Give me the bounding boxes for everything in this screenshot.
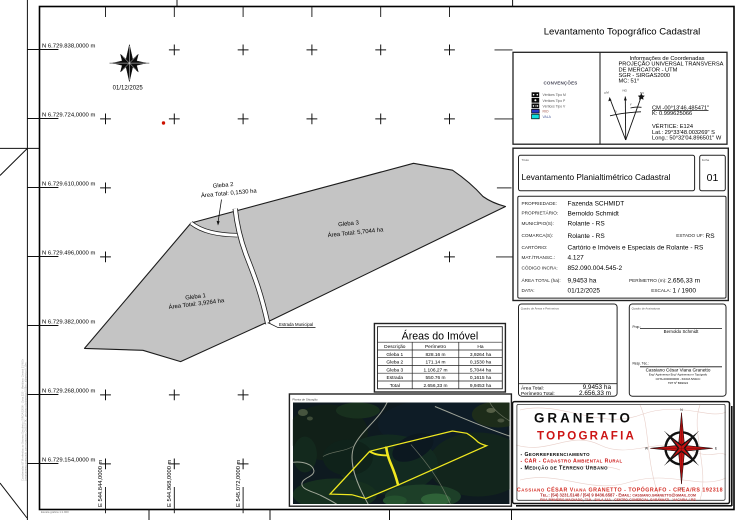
svg-text:Gleba 1: Gleba 1: [386, 352, 403, 358]
svg-text:Gleba 2: Gleba 2: [213, 182, 234, 190]
svg-text:Folha: Folha: [702, 158, 710, 162]
svg-text:Long.: 50°32'04.896501" W: Long.: 50°32'04.896501" W: [652, 136, 722, 142]
svg-text:0,1615 ha: 0,1615 ha: [470, 375, 492, 381]
svg-text:Bernoldo Schmidt: Bernoldo Schmidt: [568, 210, 619, 217]
svg-text:MUNICÍPIO(S):: MUNICÍPIO(S):: [522, 220, 554, 226]
svg-text:RIO: RIO: [543, 110, 549, 114]
svg-text:N 6.729.724,0000 m: N 6.729.724,0000 m: [42, 112, 95, 118]
svg-text:2.656,33 m: 2.656,33 m: [579, 390, 611, 397]
svg-text:MAT./TRANSC.:: MAT./TRANSC.:: [522, 255, 556, 260]
svg-text:Quadro de Áreas e Perímetros: Quadro de Áreas e Perímetros: [521, 306, 560, 310]
svg-text:CARTÓRIO:: CARTÓRIO:: [522, 244, 548, 250]
svg-text:Áreas do Imóvel: Áreas do Imóvel: [402, 330, 479, 343]
svg-text:COMARCA(S):: COMARCA(S):: [522, 233, 554, 238]
svg-text:Levantamento Topográfico Cadas: Levantamento Topográfico Cadastral: [544, 27, 701, 38]
svg-text:2.656,33 m: 2.656,33 m: [423, 383, 447, 389]
svg-text:CÓDIGO INCRA:: CÓDIGO INCRA:: [522, 265, 558, 271]
svg-text:N 6.729.610,0000 m: N 6.729.610,0000 m: [42, 181, 95, 187]
svg-text:Planta de Situação: Planta de Situação: [292, 397, 318, 401]
svg-text:Rolante - RS: Rolante - RS: [568, 221, 606, 228]
svg-text:Eng° Agrimensor Eng° Agrimenso: Eng° Agrimensor Eng° Agrimensor e Topógr…: [649, 373, 708, 377]
svg-text:Perímetro Total:: Perímetro Total:: [521, 391, 555, 397]
svg-text:Área Total:: Área Total:: [521, 384, 544, 391]
svg-text:171.14 m: 171.14 m: [425, 360, 445, 366]
svg-text:ÁREA TOTAL (ha):: ÁREA TOTAL (ha):: [522, 277, 561, 283]
svg-text:Vértices Tipo P: Vértices Tipo P: [543, 99, 567, 103]
svg-text:ESTADO UF:: ESTADO UF:: [676, 233, 704, 238]
svg-text:PROPRIETÁRIO:: PROPRIETÁRIO:: [522, 210, 559, 216]
svg-text:Levantamento Planialtimétrico: Levantamento Planialtimétrico Cadastral: [522, 172, 671, 182]
svg-text:μM: μM: [605, 91, 610, 95]
svg-text:Estrada Municipal: Estrada Municipal: [279, 322, 313, 327]
svg-text:Ha: Ha: [477, 344, 483, 350]
svg-text:Vértices Tipo V: Vértices Tipo V: [543, 104, 567, 108]
svg-text:1 / 1900: 1 / 1900: [673, 288, 697, 295]
svg-text:852.090.004.545-2: 852.090.004.545-2: [568, 265, 623, 272]
svg-text:01/12/2025: 01/12/2025: [113, 86, 144, 92]
svg-text:Levantamento executado com rec: Levantamento executado com receptores GN…: [24, 363, 28, 481]
svg-text:Gleba 3: Gleba 3: [386, 367, 403, 373]
svg-text:NV: NV: [640, 91, 644, 95]
svg-text:- CAR - CADASTRO AMBIENTAL RUR: - CAR - CADASTRO AMBIENTAL RURAL: [521, 458, 623, 464]
svg-text:Total: Total: [390, 383, 400, 389]
svg-text:01/12/2025: 01/12/2025: [568, 288, 601, 295]
svg-text:Descrição: Descrição: [384, 344, 406, 350]
svg-text:TOPOGRAFIA: TOPOGRAFIA: [537, 429, 636, 442]
svg-text:9,9453 ha: 9,9453 ha: [470, 383, 492, 389]
svg-text:E 544.968,0000 m: E 544.968,0000 m: [167, 459, 173, 507]
svg-text:5,7044 ha: 5,7044 ha: [470, 367, 492, 373]
svg-text:GRANETTO: GRANETTO: [534, 411, 633, 426]
svg-text:Título: Título: [522, 158, 530, 162]
svg-text:PERÍMETRO (m):: PERÍMETRO (m):: [629, 277, 667, 283]
svg-text:N 6.729.382,0000 m: N 6.729.382,0000 m: [42, 319, 95, 325]
svg-text:TEL.: (54) 3231.5148 / (54) 9: TEL.: (54) 3231.5148 / (54) 9 8436.6587 …: [540, 492, 696, 497]
svg-text:DATA:: DATA:: [522, 288, 535, 293]
svg-text:Estrada: Estrada: [387, 375, 404, 381]
svg-text:01: 01: [707, 172, 719, 184]
svg-text:Quadro de Assinaturas: Quadro de Assinaturas: [632, 306, 661, 310]
svg-text:4.127: 4.127: [568, 255, 585, 262]
svg-text:2.656,33 m: 2.656,33 m: [668, 278, 701, 285]
svg-text:NG: NG: [623, 89, 628, 93]
svg-text:N 6.729.154,0000 m: N 6.729.154,0000 m: [42, 457, 95, 463]
svg-text:0,1530 ha: 0,1530 ha: [470, 360, 492, 366]
svg-text:828.16 m: 828.16 m: [425, 352, 445, 358]
svg-text:TRT Nº BR2024: TRT Nº BR2024: [668, 381, 688, 385]
svg-text:E 545.072,0000 m: E 545.072,0000 m: [236, 459, 242, 507]
svg-text:Área Total: 0,1530 ha: Área Total: 0,1530 ha: [201, 187, 258, 199]
svg-text:9,9453 ha: 9,9453 ha: [568, 278, 597, 285]
svg-text:Prop.:: Prop.:: [633, 325, 642, 329]
svg-text:Cartório e Imóveis e Especiais: Cartório e Imóveis e Especiais de Rolant…: [568, 245, 705, 252]
svg-text:RS: RS: [706, 233, 716, 240]
svg-text:Gleba 2: Gleba 2: [386, 360, 403, 366]
svg-text:E 544.844,0000 m: E 544.844,0000 m: [98, 459, 104, 507]
svg-text:Escala grafica 1:1.900: Escala grafica 1:1.900: [41, 510, 69, 514]
svg-text:VALA: VALA: [543, 115, 552, 119]
svg-text:PROPRIEDADE:: PROPRIEDADE:: [522, 201, 557, 206]
svg-text:Perímetro: Perímetro: [425, 344, 446, 350]
svg-text:3,9264 ha: 3,9264 ha: [470, 352, 492, 358]
svg-text:Rolante - RS: Rolante - RS: [568, 233, 606, 240]
svg-text:K: 0.999625066: K: 0.999625066: [652, 111, 692, 117]
svg-text:RUA PINHEIRO MACHADO, 719 - SA: RUA PINHEIRO MACHADO, 719 - SALA 112 - C…: [540, 498, 696, 502]
svg-text:N 6.729.268,0000 m: N 6.729.268,0000 m: [42, 388, 95, 394]
svg-text:N 6.729.496,0000 m: N 6.729.496,0000 m: [42, 250, 95, 256]
svg-text:Resp. Téc.:: Resp. Téc.:: [633, 362, 649, 366]
svg-text:ESCALA:: ESCALA:: [651, 288, 671, 293]
svg-text:1.106,27 m: 1.106,27 m: [423, 367, 447, 373]
svg-text:CONVENÇÕES: CONVENÇÕES: [543, 80, 577, 86]
svg-text:MC: 51°: MC: 51°: [619, 79, 640, 85]
svg-text:550.76 m: 550.76 m: [425, 375, 445, 381]
svg-text:Bernoldo Schmidt: Bernoldo Schmidt: [664, 329, 699, 334]
svg-text:Fazenda SCHMIDT: Fazenda SCHMIDT: [568, 200, 625, 207]
svg-text:N 6.729.838,0000 m: N 6.729.838,0000 m: [42, 43, 95, 49]
svg-text:Vértices Tipo M: Vértices Tipo M: [543, 93, 567, 97]
